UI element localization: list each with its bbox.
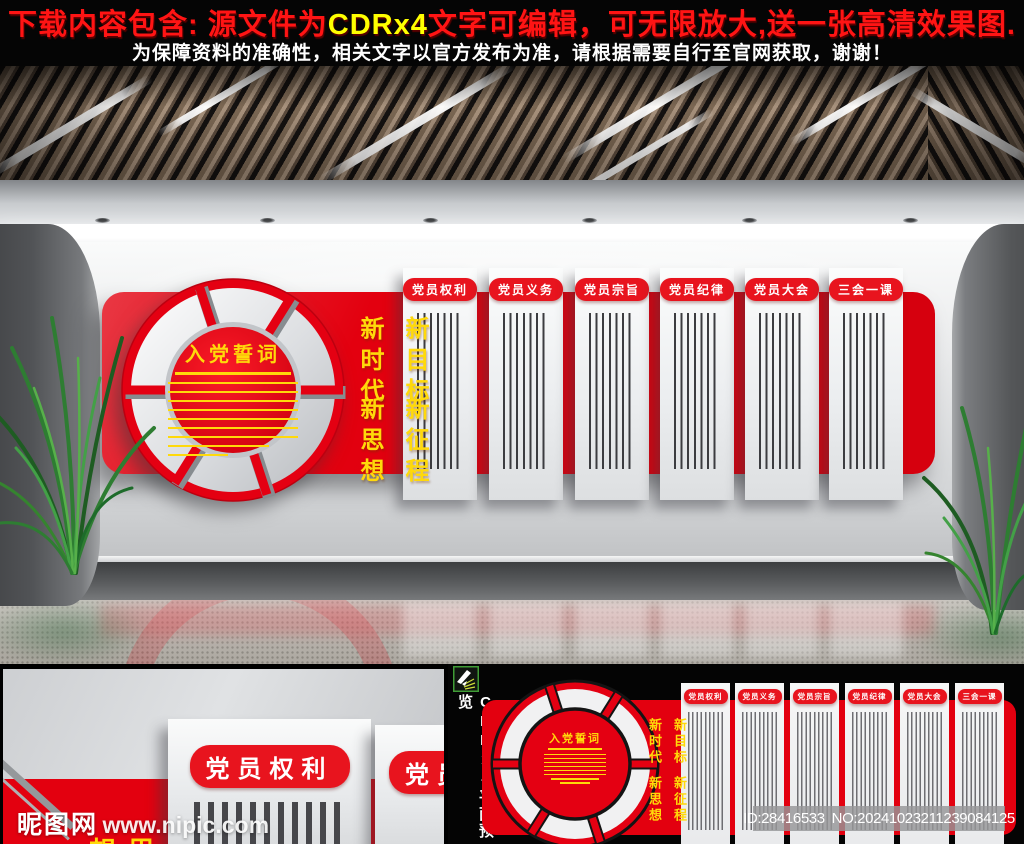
potted-plant-right <box>922 338 1024 638</box>
banner-text-suffix: 文字可编辑，可无限放大,送一张高清效果图. <box>428 9 1016 41</box>
disclaimer-note: 为保障资料的准确性，相关文字以官方发布为准，请根据需要自行至官网获取，谢谢！ <box>0 38 1024 65</box>
preview-oath-disc-text: 入党誓词 <box>525 730 625 810</box>
panel-title-pill: 党员宗旨 <box>793 689 837 704</box>
downlight <box>260 218 275 223</box>
stock-no: NO:20241023211239084125 <box>832 810 1015 827</box>
stock-id: ID:28416533 <box>743 810 825 827</box>
slogan-col-xinzhengcheng: 新征程 <box>397 396 432 489</box>
panel-title-pill: 党员宗旨 <box>575 278 649 301</box>
panel-title-pill: 党员义务 <box>389 751 444 794</box>
panel-text-lines <box>759 313 805 469</box>
slogan-col: 新时代 <box>645 718 664 766</box>
floor-sheen <box>0 600 1024 664</box>
panel-title-pill: 党员纪律 <box>660 278 734 301</box>
drop-ceiling-band <box>0 180 1024 228</box>
potted-plant-left <box>0 258 162 578</box>
detail-crop: 新思想 新征程 党员权利 党员义务 昵图网 www.nipic.com <box>0 664 448 844</box>
stock-image-preview-page: 下载内容包含: 源文件为CDRx4文字可编辑，可无限放大,送一张高清效果图. 为… <box>0 0 1024 844</box>
oath-text-lines <box>168 382 298 457</box>
slogan-col-xinsixiang: 新思想 <box>352 396 387 489</box>
site-url: www.nipic.com <box>102 812 269 838</box>
panel-title-pill: 党员权利 <box>190 745 350 788</box>
panel-title-pill: 党员义务 <box>489 278 563 301</box>
showroom-render: 入党誓词 新时代 新目标 新思想 新征程 党员权利 党员义务 党员宗旨 <box>0 66 1024 664</box>
panel-text-lines <box>674 313 720 469</box>
preview-slogan-block-2: 新思想 新征程 <box>645 776 689 824</box>
panel-text-lines <box>589 313 635 469</box>
panel-title-pill: 党员纪律 <box>848 689 892 704</box>
cdr-format-highlight: CDRx4 <box>328 9 428 41</box>
downlight <box>95 218 110 223</box>
panel-text-lines <box>843 313 889 469</box>
download-content-note: 下载内容包含: 源文件为CDRx4文字可编辑，可无限放大,送一张高清效果图. <box>0 1 1024 43</box>
slogan-block-2: 新思想 新征程 <box>352 396 432 489</box>
oath-title: 入党誓词 <box>168 338 298 367</box>
panel-dangyuan-zongzhi: 党员宗旨 <box>575 268 649 500</box>
banner-text-prefix: 下载内容包含: 源文件为 <box>8 9 328 41</box>
panel-title-pill: 三会一课 <box>829 278 903 301</box>
oath-underline <box>548 748 602 750</box>
panel-title-pill: 党员权利 <box>403 278 477 301</box>
panel-title-pill: 党员大会 <box>745 278 819 301</box>
site-name: 昵图网 <box>17 811 98 839</box>
slogan-col: 新思想 <box>645 776 664 824</box>
panel-text-lines <box>688 712 724 830</box>
downlight <box>582 218 597 223</box>
stock-info-badge: ID:28416533 NO:20241023211239084125 <box>753 806 1005 831</box>
preview-slogan-block-1: 新时代 新目标 <box>645 718 689 766</box>
panel-dangyuan-jilv: 党员纪律 <box>660 268 734 500</box>
oath-text-lines <box>525 754 625 784</box>
coreldraw-icon <box>453 666 479 692</box>
panel-dangyuan-yiwu: 党员义务 <box>489 268 563 500</box>
crop-panel-dangyuan-yiwu: 党员义务 <box>375 725 444 844</box>
oath-disc-text: 入党誓词 <box>168 338 298 442</box>
promo-banner: 下载内容包含: 源文件为CDRx4文字可编辑，可无限放大,送一张高清效果图. 为… <box>0 0 1024 66</box>
oath-title: 入党誓词 <box>525 730 625 746</box>
panel-dangyuan-dahui: 党员大会 <box>745 268 819 500</box>
flat-preview: CDRx4平面预览 入党誓词 <box>448 664 1024 844</box>
slogan-col: 新目标 <box>670 718 689 766</box>
panel-sanhui-yike: 三会一课 <box>829 268 903 500</box>
panel-text-lines <box>503 313 549 469</box>
panel-title-pill: 党员权利 <box>684 689 728 704</box>
downlight <box>742 218 757 223</box>
downlight <box>903 218 918 223</box>
panel-title-pill: 党员义务 <box>738 689 782 704</box>
ceiling-shadow-overlay <box>0 66 1024 182</box>
oath-underline <box>175 372 291 375</box>
panel-title-pill: 三会一课 <box>958 689 1002 704</box>
site-watermark: 昵图网 www.nipic.com <box>17 805 269 841</box>
slogan-col: 新征程 <box>670 776 689 824</box>
downlight <box>423 218 438 223</box>
terrazzo-floor <box>0 600 1024 664</box>
panel-title-pill: 党员大会 <box>903 689 947 704</box>
